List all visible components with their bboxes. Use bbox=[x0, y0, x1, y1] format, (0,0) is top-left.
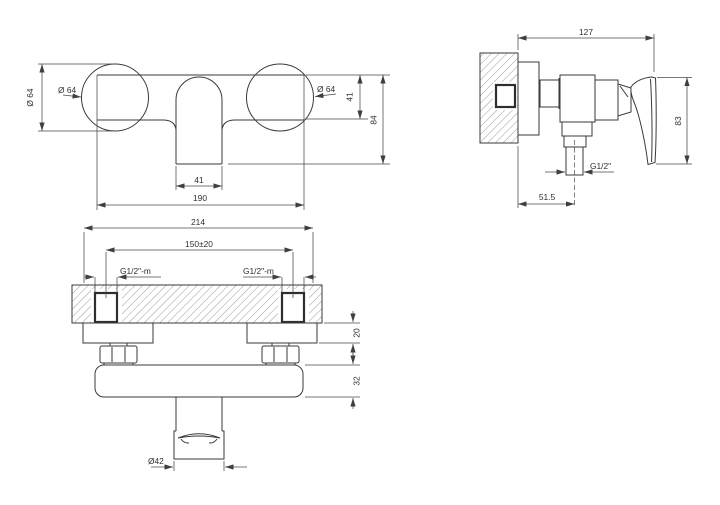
bottom-wall-band bbox=[72, 285, 322, 323]
dim-label-83: 83 bbox=[673, 116, 683, 126]
aerator-curve bbox=[178, 434, 220, 438]
right-knob-circle bbox=[247, 64, 314, 131]
side-mixer-body bbox=[518, 62, 656, 207]
left-knob-circle bbox=[82, 64, 149, 131]
dim-label-g12m-right: G1/2"-m bbox=[243, 266, 274, 276]
bottom-body bbox=[95, 365, 303, 397]
dim-label-51-5: 51.5 bbox=[539, 192, 556, 202]
side-body bbox=[560, 75, 595, 122]
technical-drawing-page: Ø 64 Ø 64 Ø 64 41 84 41 190 bbox=[0, 0, 720, 505]
front-dim-spout-width: 41 bbox=[176, 166, 222, 190]
front-dim-dia-rotated: Ø 64 bbox=[25, 64, 112, 131]
bottom-dim-outlet-diameter: Ø42 bbox=[148, 456, 247, 471]
dim-label-g12: G1/2" bbox=[590, 161, 611, 171]
side-connector bbox=[540, 80, 559, 107]
dim-label-g12m-left: G1/2"-m bbox=[120, 266, 151, 276]
bottom-dim-body-depth: 32 bbox=[305, 353, 362, 409]
side-wall-section bbox=[480, 53, 518, 143]
dim-label-41-right: 41 bbox=[345, 92, 355, 102]
side-dim-height: 83 bbox=[656, 78, 692, 165]
front-view-body-outline bbox=[82, 64, 314, 164]
dim-label-dia64-vertical: Ø 64 bbox=[25, 88, 35, 106]
dim-label-84: 84 bbox=[369, 115, 379, 125]
front-dim-dia-left-leader: Ø 64 bbox=[58, 85, 81, 97]
technical-drawing: Ø 64 Ø 64 Ø 64 41 84 41 190 bbox=[0, 0, 720, 505]
side-cartridge-cap bbox=[595, 80, 618, 120]
dim-label-190: 190 bbox=[193, 193, 207, 203]
dim-label-20: 20 bbox=[352, 328, 362, 338]
escutcheon-left bbox=[83, 323, 153, 343]
bottom-dim-escutcheon-depth: 20 bbox=[319, 311, 362, 355]
hex-nut-left bbox=[100, 346, 137, 363]
wall-socket-fitting bbox=[496, 85, 515, 107]
dim-label-dia64-right: Ø 64 bbox=[317, 84, 335, 94]
hex-nut-right bbox=[262, 346, 299, 363]
side-escutcheon bbox=[518, 62, 539, 135]
side-view: 127 83 G1/2" 51.5 bbox=[480, 27, 692, 208]
front-dim-dia-right-leader: Ø 64 bbox=[315, 84, 336, 97]
front-view: Ø 64 Ø 64 Ø 64 41 84 41 190 bbox=[25, 64, 390, 210]
front-dim-body-height: 41 bbox=[306, 75, 390, 119]
dim-label-dia64-left: Ø 64 bbox=[58, 85, 76, 95]
bottom-view: 214 150±20 G1/2"-m G1/2"-m 20 bbox=[72, 217, 362, 471]
escutcheon-right bbox=[247, 323, 317, 343]
dim-label-dia42: Ø42 bbox=[148, 456, 164, 466]
dim-label-32: 32 bbox=[352, 376, 362, 386]
dim-label-150-20: 150±20 bbox=[185, 239, 213, 249]
handle-cone bbox=[618, 84, 631, 116]
outlet-cup bbox=[174, 431, 224, 459]
front-dim-overall-width: 190 bbox=[97, 75, 304, 210]
dim-label-127: 127 bbox=[579, 27, 593, 37]
side-outlet-nut bbox=[564, 136, 586, 147]
dim-label-214: 214 bbox=[191, 217, 205, 227]
bottom-mixer-body bbox=[83, 323, 317, 459]
dim-label-41-bottom: 41 bbox=[194, 175, 204, 185]
